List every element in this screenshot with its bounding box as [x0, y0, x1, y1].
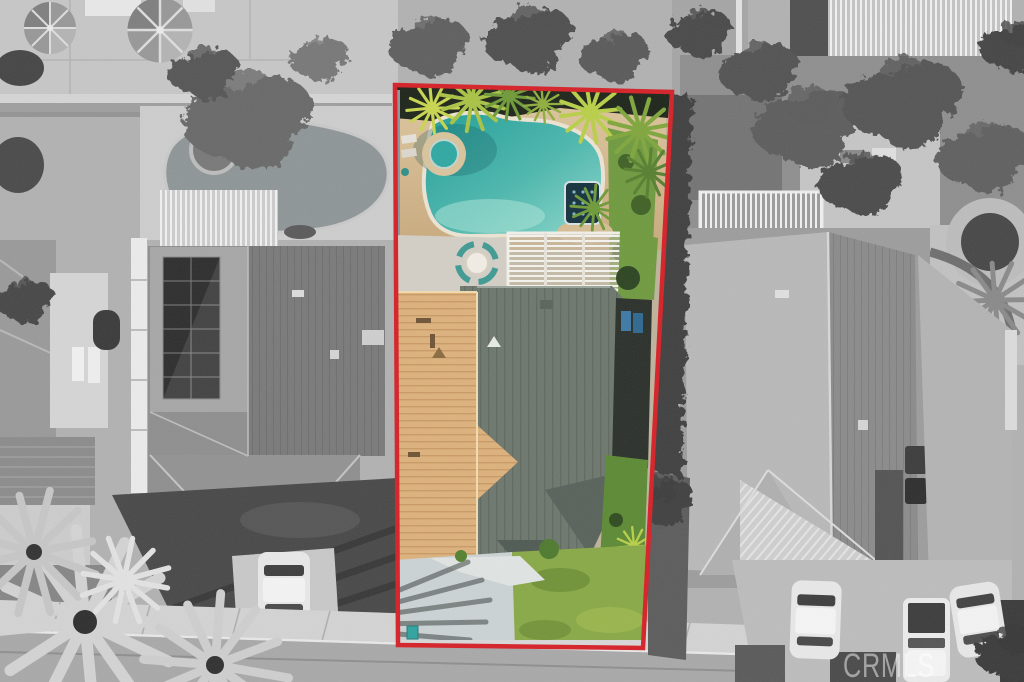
watermark: CRMLS [843, 647, 935, 682]
aerial-photo: CRMLS [0, 0, 1024, 682]
film-grain [0, 0, 1024, 682]
